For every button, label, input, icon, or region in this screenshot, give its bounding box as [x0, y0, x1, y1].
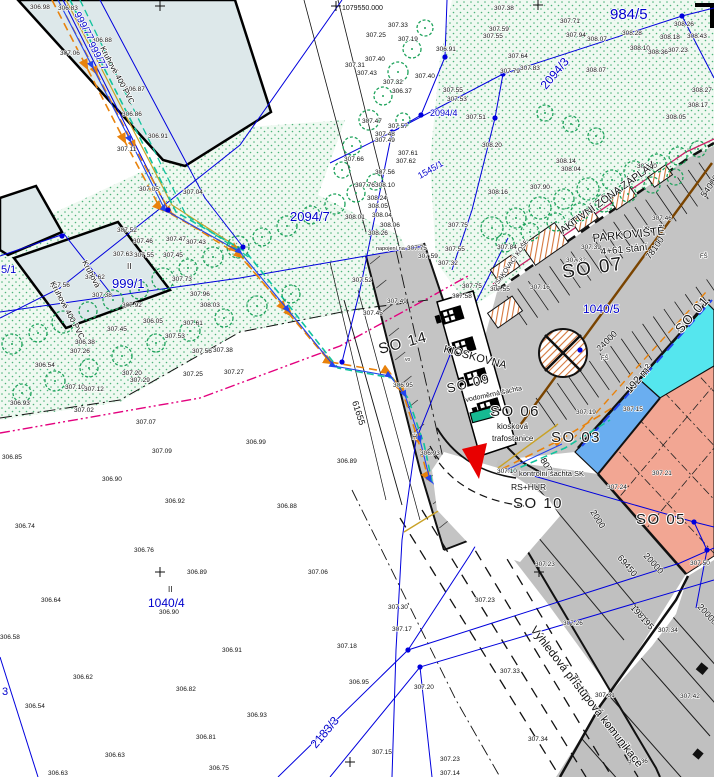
place-label: kontrolní šachta SK — [519, 469, 584, 478]
boundary-point — [679, 13, 684, 18]
spot-elevation: 307.46 — [133, 238, 153, 245]
spot-elevation: 307.52 — [352, 277, 372, 284]
boundary-point — [442, 54, 447, 59]
spot-elevation: 308.26 — [368, 230, 388, 237]
spot-elevation: 307.38 — [494, 5, 514, 12]
parcel-label: 2183/3 — [308, 714, 343, 751]
spot-elevation: 307.47 — [166, 236, 186, 243]
spot-elevation: 307.45 — [107, 326, 127, 333]
spot-elevation: 307.55 — [443, 87, 463, 94]
spot-elevation: 307.05 — [139, 186, 159, 193]
spot-elevation: 307.33 — [388, 22, 408, 29]
spot-elevation: 307.30 — [388, 604, 408, 611]
spot-elevation: 308.36 — [648, 49, 668, 56]
boundary-point — [339, 359, 344, 364]
spot-elevation: 308.07 — [586, 67, 606, 74]
parcel-label: 5/1 — [1, 264, 16, 276]
spot-elevation: 308.04 — [561, 166, 581, 173]
spot-elevation: 306.38 — [75, 339, 95, 346]
spot-elevation: 306.05 — [143, 318, 163, 325]
boundary-point — [704, 547, 709, 552]
place-label: trafostanice — [492, 434, 534, 443]
spot-elevation: 307.92 — [122, 302, 142, 309]
spot-elevation: 307.29 — [130, 377, 150, 384]
parcel-label: 984/5 — [610, 6, 648, 23]
parcel-label: 2094/7 — [290, 209, 330, 224]
spot-elevation: 306.95 — [349, 679, 369, 686]
spot-elevation: 307.49 — [387, 298, 407, 305]
spot-elevation: 307.51 — [466, 114, 486, 121]
spot-elevation: 306.63 — [105, 752, 125, 759]
spot-elevation: 307.47 — [362, 118, 382, 125]
spot-elevation: 306.74 — [15, 523, 35, 530]
boundary-point — [240, 244, 245, 249]
spot-elevation: 307.46 — [652, 215, 672, 222]
spot-elevation: 307.23 — [440, 756, 460, 763]
spot-elevation: 307.53 — [165, 333, 185, 340]
spot-elevation: 307.39 — [581, 244, 601, 251]
spot-elevation: 307.59 — [489, 26, 509, 33]
spot-elevation: 307.75 — [407, 245, 427, 252]
spot-elevation: 308.01 — [345, 214, 365, 221]
spot-elevation: 307.10 — [65, 384, 85, 391]
spot-elevation: 308.17 — [688, 102, 708, 109]
spot-elevation: 307.32 — [383, 79, 403, 86]
dimension-label: 61655 — [350, 400, 367, 427]
spot-elevation: 307.73 — [172, 276, 192, 283]
spot-elevation: 307.61 — [398, 150, 418, 157]
spot-elevation: 306.83 — [58, 5, 78, 12]
spot-elevation: 307.71 — [560, 18, 580, 25]
spot-elevation: 306.63 — [48, 770, 68, 777]
spot-elevation: 307.56 — [192, 348, 212, 355]
site-plan-map: 306.98306.83307.06306.88306.87306.86306.… — [0, 0, 714, 777]
parcel-label: 1040/4 — [148, 596, 185, 610]
spot-elevation: 307.20 — [414, 684, 434, 691]
spot-elevation: 307.90 — [530, 184, 550, 191]
place-label: FŠ — [700, 253, 708, 260]
so-label: SO 06 — [490, 403, 540, 420]
coordinate-label: 1079550.000 — [342, 5, 383, 12]
spot-elevation: 308.24 — [367, 195, 387, 202]
spot-elevation: 307.38 — [92, 292, 112, 299]
spot-elevation: 308.14 — [556, 158, 576, 165]
spot-elevation: 306.54 — [25, 703, 45, 710]
place-label: kiosková — [497, 422, 529, 431]
spot-elevation: 308.20 — [482, 142, 502, 149]
spot-elevation: 306.91 — [436, 46, 456, 53]
spot-elevation: 306.88 — [277, 503, 297, 510]
spot-elevation: 307.06 — [60, 50, 80, 57]
spot-elevation: 307.25 — [366, 32, 386, 39]
spot-elevation: 307.11 — [117, 146, 137, 153]
boundary-point — [417, 664, 422, 669]
spot-elevation: 306.91 — [148, 133, 168, 140]
place-label: FŠ — [601, 355, 609, 362]
spot-elevation: 307.15 — [623, 406, 643, 413]
spot-elevation: 307.31 — [595, 692, 615, 699]
spot-elevation: 307.62 — [396, 158, 416, 165]
spot-elevation: 306.64 — [41, 597, 61, 604]
spot-elevation: 307.09 — [152, 448, 172, 455]
spot-elevation: 307.21 — [652, 470, 672, 477]
spot-elevation: 308.05 — [666, 114, 686, 121]
spot-elevation: 307.79 — [500, 68, 520, 75]
spot-elevation: 307.63 — [113, 251, 133, 258]
spot-elevation: 308.05 — [368, 203, 388, 210]
parcel-label: 1040/5 — [583, 302, 620, 316]
spot-elevation: 307.14 — [440, 770, 460, 777]
spot-elevation: 307.53 — [447, 96, 467, 103]
spot-elevation: 306.93 — [420, 450, 440, 457]
spot-elevation: 307.66 — [344, 156, 364, 163]
map-canvas[interactable]: 306.98306.83307.06306.88306.87306.86306.… — [0, 0, 714, 777]
spot-elevation: 307.17 — [392, 626, 412, 633]
spot-elevation: 307.19 — [576, 409, 596, 416]
spot-elevation: 306.89 — [187, 569, 207, 576]
spot-elevation: 306.90 — [159, 609, 179, 616]
spot-elevation: 307.31 — [345, 62, 365, 69]
spot-elevation: 307.16 — [530, 284, 550, 291]
boundary-point — [577, 347, 582, 352]
spot-elevation: 307.04 — [183, 189, 203, 196]
spot-elevation: 307.61 — [183, 320, 203, 327]
so-label: SO 05 — [636, 511, 686, 528]
spot-elevation: 307.43 — [186, 239, 206, 246]
spot-elevation: 307.33 — [500, 668, 520, 675]
spot-elevation: 308.06 — [380, 222, 400, 229]
spot-elevation: 306.86 — [122, 111, 142, 118]
spot-elevation: 308.28 — [622, 30, 642, 37]
spot-elevation: 308.18 — [660, 34, 680, 41]
parcel-label: 3 — [2, 686, 8, 698]
so-label: SO 10 — [513, 495, 563, 512]
drainage-circle — [539, 329, 587, 377]
spot-elevation: 307.34 — [528, 736, 548, 743]
spot-elevation: 306.99 — [246, 439, 266, 446]
spot-elevation: 308.04 — [372, 212, 392, 219]
spot-elevation: 307.32 — [438, 260, 458, 267]
spot-elevation: 307.55 — [445, 246, 465, 253]
spot-elevation: 307.55 — [483, 33, 503, 40]
place-label: II — [168, 585, 172, 594]
place-label: II — [127, 262, 131, 271]
spot-elevation: 307.40 — [365, 56, 385, 63]
spot-elevation: 307.38 — [213, 347, 233, 354]
spot-elevation: 307.25 — [183, 371, 203, 378]
spot-elevation: 307.57 — [388, 123, 408, 130]
spot-elevation: 307.55 — [134, 252, 154, 259]
spot-elevation: 306.54 — [35, 362, 55, 369]
spot-elevation: 307.12 — [84, 386, 104, 393]
spot-elevation: 306.81 — [196, 734, 216, 741]
spot-elevation: 307.06 — [308, 569, 328, 576]
spot-elevation: 306.85 — [2, 454, 22, 461]
spot-elevation: 306.89 — [337, 458, 357, 465]
spot-elevation: 306.95 — [393, 382, 413, 389]
spot-elevation: 308.26 — [674, 21, 694, 28]
spot-elevation: 308.16 — [488, 189, 508, 196]
spot-elevation: 307.19 — [398, 36, 418, 43]
spot-elevation: 307.07 — [136, 419, 156, 426]
spot-elevation: 307.75 — [462, 283, 482, 290]
spot-elevation: 307.18 — [337, 643, 357, 650]
spot-elevation: 307.15 — [372, 749, 392, 756]
spot-elevation: 307.83 — [520, 65, 540, 72]
spot-elevation: 307.59 — [418, 253, 438, 260]
spot-elevation: 308.43 — [687, 33, 707, 40]
spot-elevation: 306.58 — [0, 634, 20, 641]
spot-elevation: 307.23 — [475, 597, 495, 604]
spot-elevation: 306.98 — [30, 4, 50, 11]
spot-elevation: 306.37 — [392, 88, 412, 95]
boundary-point — [405, 647, 410, 652]
spot-elevation: 307.42 — [680, 693, 700, 700]
spot-elevation: 306.92 — [165, 498, 185, 505]
spot-elevation: 306.75 — [209, 765, 229, 772]
boundary-point — [59, 233, 64, 238]
spot-elevation: 306.91 — [222, 647, 242, 654]
place-label: napojení na — [376, 246, 406, 252]
spot-elevation: 307.64 — [508, 53, 528, 60]
spot-elevation: 307.96 — [190, 291, 210, 298]
spot-elevation: 307.26 — [70, 348, 90, 355]
spot-elevation: 307.40 — [415, 73, 435, 80]
parcel-label: 999/1 — [112, 276, 145, 291]
spot-elevation: 307.58 — [452, 293, 472, 300]
spot-elevation: 307.43 — [357, 70, 377, 77]
spot-elevation: 306.82 — [176, 686, 196, 693]
spot-elevation: 307.45 — [363, 310, 383, 317]
spot-elevation: 307.52 — [117, 227, 137, 234]
spot-elevation: 307.10 — [497, 468, 517, 475]
spot-elevation: 308.07 — [587, 36, 607, 43]
place-label: RS+HUR — [511, 482, 546, 492]
place-label: vo — [405, 357, 411, 363]
spot-elevation: 307.23 — [535, 561, 555, 568]
spot-elevation: 307.50 — [690, 560, 710, 567]
spot-elevation: 306.93 — [247, 712, 267, 719]
spot-elevation: 307.20 — [122, 370, 142, 377]
boundary-point — [492, 115, 497, 120]
spot-elevation: 307.94 — [566, 32, 586, 39]
parcel-label: 2094/4 — [430, 108, 458, 118]
spot-elevation: 307.24 — [607, 484, 627, 491]
spot-elevation: 306.62 — [73, 674, 93, 681]
spot-elevation: 307.84 — [497, 244, 517, 251]
so-label: SO 03 — [551, 429, 601, 446]
spot-elevation: 308.27 — [692, 87, 712, 94]
spot-elevation: 307.56 — [375, 169, 395, 176]
spot-elevation: 306.90 — [102, 476, 122, 483]
spot-elevation: 306.93 — [10, 400, 30, 407]
spot-elevation: 307.27 — [224, 369, 244, 376]
spot-elevation: 308.03 — [200, 302, 220, 309]
boundary-point — [418, 112, 423, 117]
spot-elevation: 307.49 — [375, 137, 395, 144]
place-label: H — [412, 434, 417, 441]
spot-elevation: 307.76 — [355, 182, 375, 189]
spot-elevation: 307.75 — [448, 222, 468, 229]
spot-elevation: 307.02 — [74, 407, 94, 414]
spot-elevation: 307.26 — [563, 620, 583, 627]
boundary-point — [165, 207, 170, 212]
spot-elevation: 307.34 — [658, 627, 678, 634]
spot-elevation: 306.76 — [134, 547, 154, 554]
spot-elevation: 308.10 — [375, 182, 395, 189]
boundary-point — [691, 519, 696, 524]
spot-elevation: 307.23 — [668, 47, 688, 54]
spot-elevation: 307.45 — [163, 252, 183, 259]
